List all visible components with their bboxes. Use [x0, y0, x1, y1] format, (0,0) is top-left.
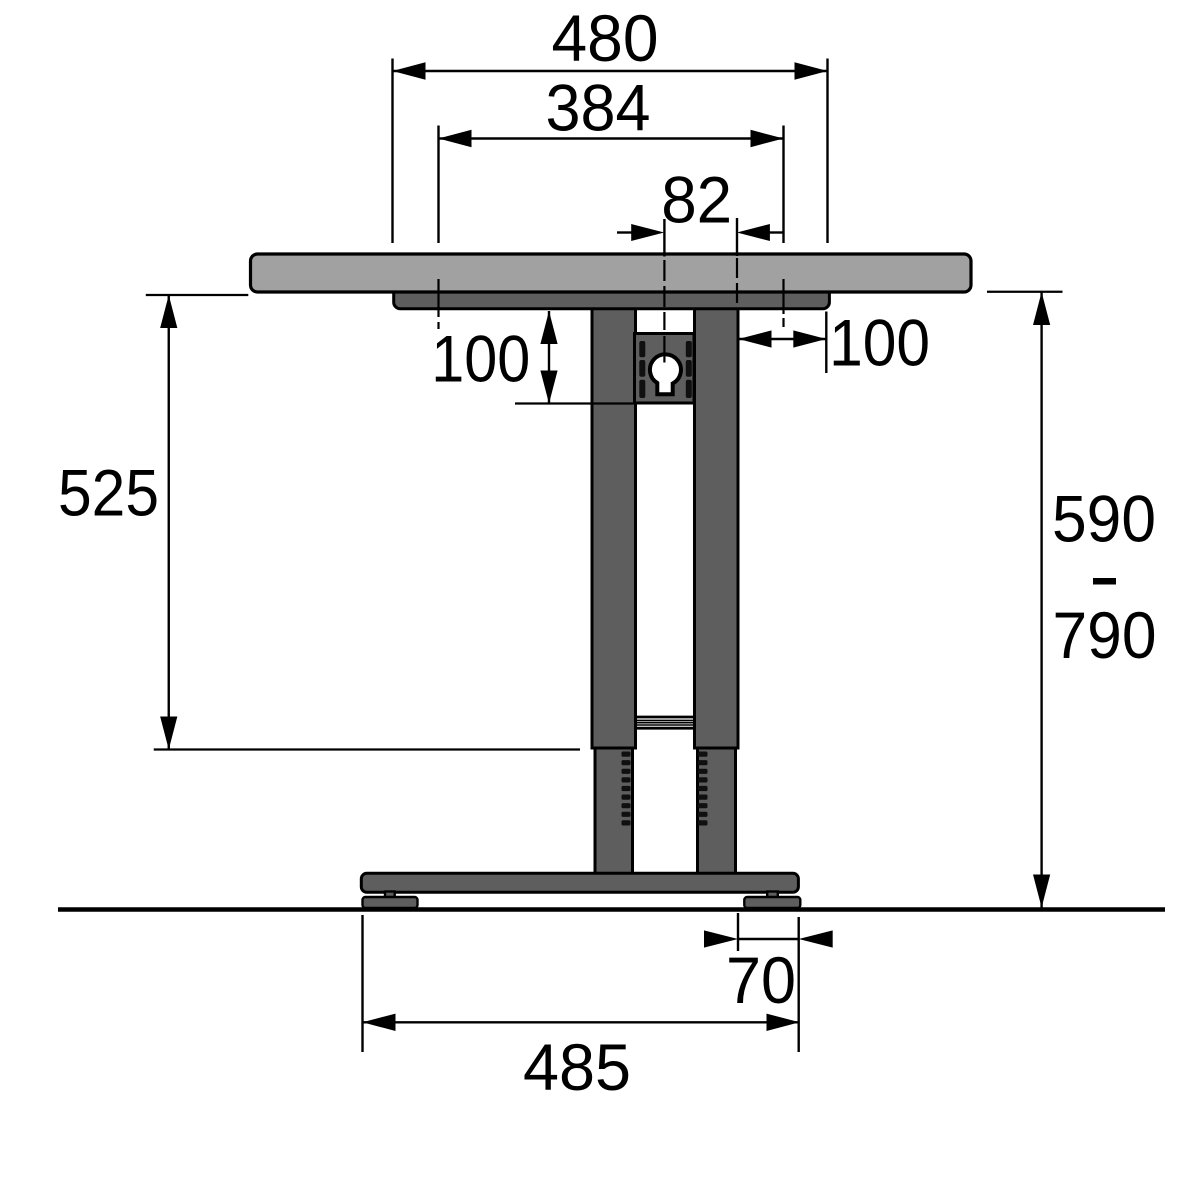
svg-text:590: 590: [1052, 482, 1156, 556]
svg-text:485: 485: [523, 1030, 631, 1104]
svg-text:790: 790: [1053, 598, 1157, 672]
svg-text:525: 525: [58, 456, 159, 530]
svg-text:100: 100: [829, 305, 930, 379]
svg-text:384: 384: [546, 71, 651, 145]
svg-text:480: 480: [552, 1, 659, 75]
svg-text:82: 82: [661, 163, 732, 237]
svg-text:70: 70: [726, 943, 796, 1017]
svg-text:100: 100: [431, 322, 530, 396]
